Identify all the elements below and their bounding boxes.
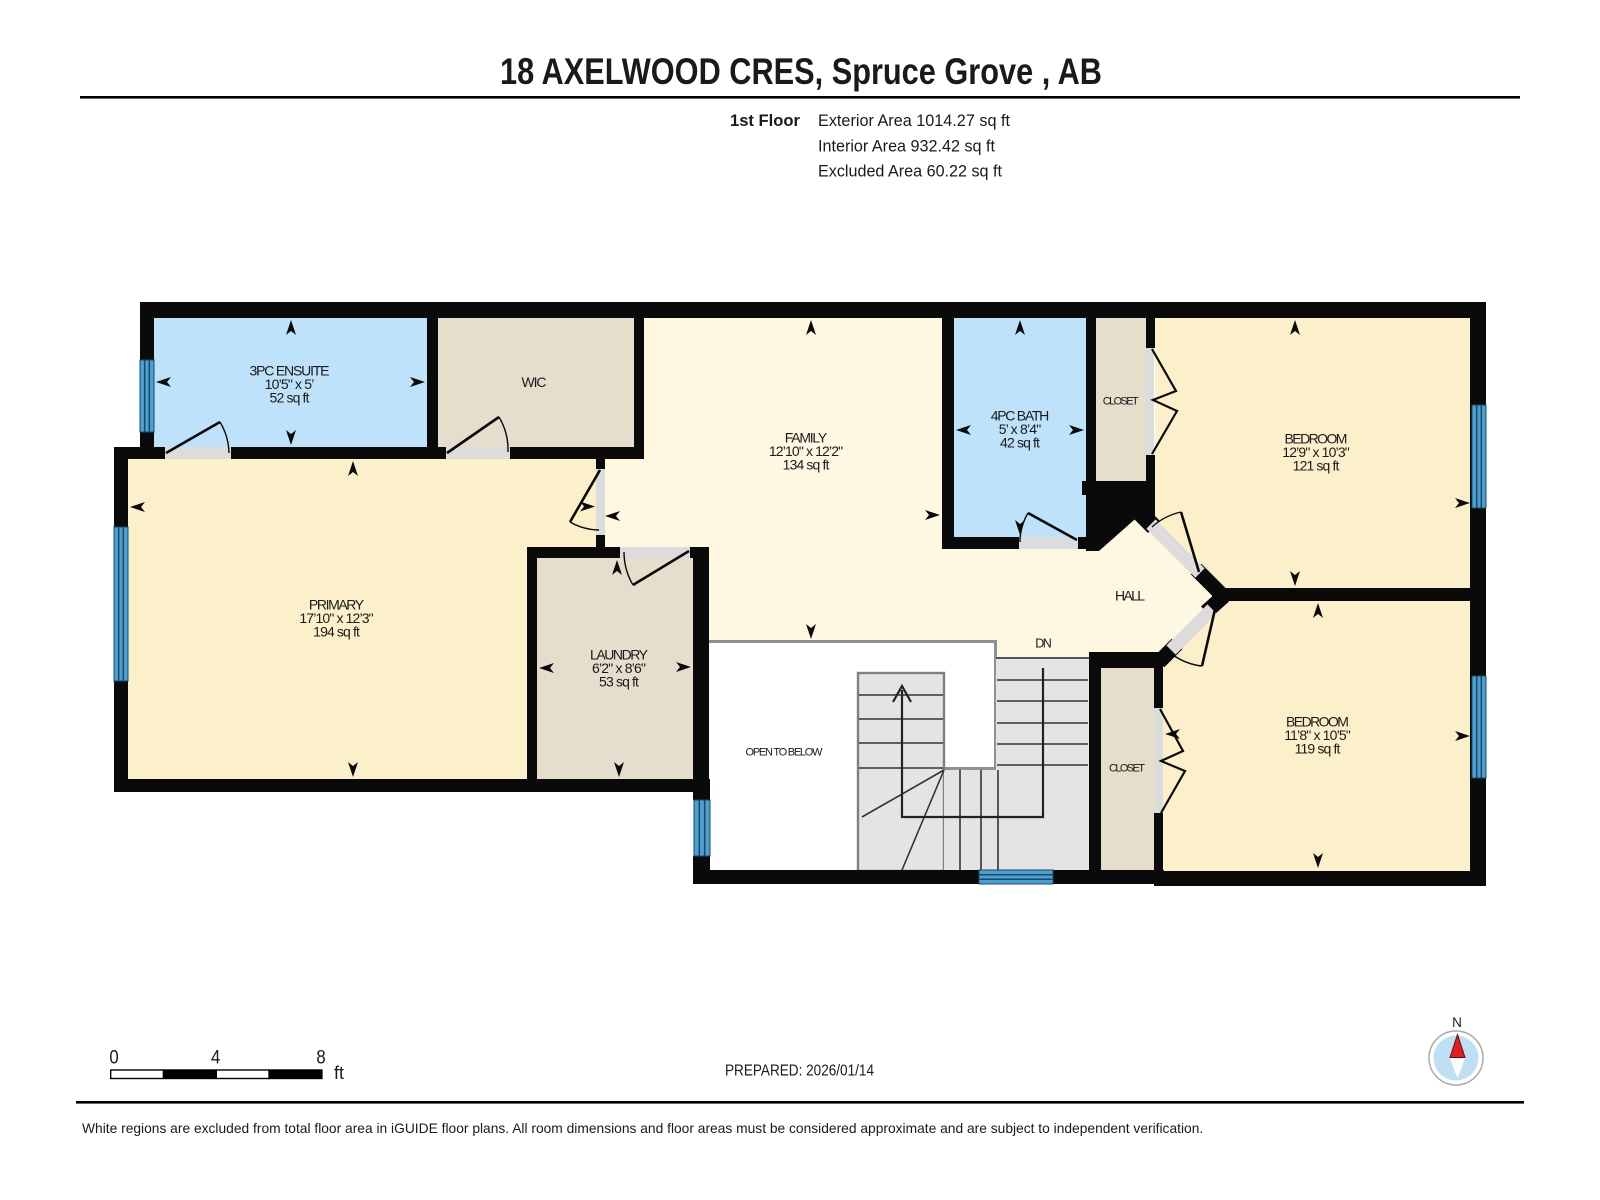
svg-text:194 sq ft: 194 sq ft — [313, 623, 360, 639]
svg-text:PREPARED: 2026/01/14: PREPARED: 2026/01/14 — [725, 1063, 874, 1080]
svg-text:WIC: WIC — [522, 374, 547, 390]
svg-text:HALL: HALL — [1115, 588, 1145, 604]
svg-text:DN: DN — [1035, 637, 1052, 651]
svg-text:OPEN TO BELOW: OPEN TO BELOW — [746, 747, 824, 759]
svg-text:119 sq ft: 119 sq ft — [1295, 741, 1341, 757]
svg-text:White regions are excluded fro: White regions are excluded from total fl… — [82, 1121, 1203, 1136]
svg-text:134 sq ft: 134 sq ft — [783, 457, 830, 473]
svg-text:4: 4 — [211, 1047, 220, 1069]
svg-text:53 sq ft: 53 sq ft — [599, 674, 639, 690]
svg-text:52 sq ft: 52 sq ft — [270, 390, 310, 406]
svg-text:121 sq ft: 121 sq ft — [1293, 458, 1340, 474]
svg-text:Excluded Area 60.22 sq ft: Excluded Area 60.22 sq ft — [818, 162, 1002, 181]
svg-text:CLOSET: CLOSET — [1109, 763, 1145, 775]
svg-text:0: 0 — [109, 1047, 118, 1069]
svg-text:18 AXELWOOD CRES, Spruce Grove: 18 AXELWOOD CRES, Spruce Grove , AB — [500, 51, 1102, 92]
svg-text:ft: ft — [334, 1063, 344, 1083]
svg-text:Interior Area 932.42 sq ft: Interior Area 932.42 sq ft — [818, 137, 995, 156]
svg-text:42 sq ft: 42 sq ft — [1000, 435, 1040, 451]
svg-text:N: N — [1452, 1015, 1462, 1030]
svg-text:1st Floor: 1st Floor — [730, 111, 800, 130]
svg-text:Exterior Area 1014.27 sq ft: Exterior Area 1014.27 sq ft — [818, 111, 1010, 130]
svg-text:CLOSET: CLOSET — [1103, 396, 1139, 408]
svg-text:8: 8 — [316, 1047, 325, 1069]
